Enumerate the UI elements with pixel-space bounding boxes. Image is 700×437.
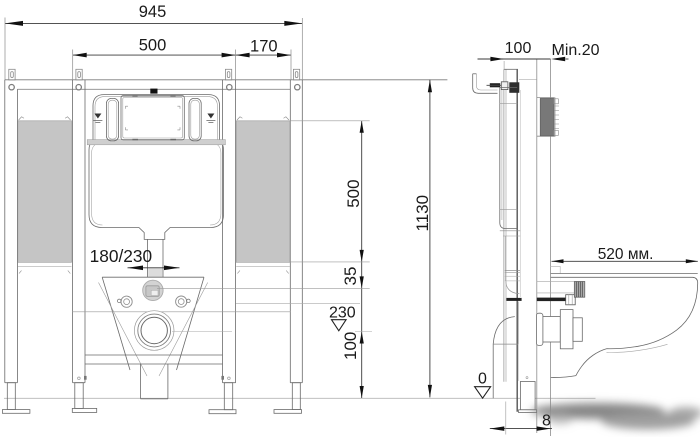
svg-text:0: 0 xyxy=(478,370,487,387)
svg-text:100: 100 xyxy=(341,332,360,360)
svg-text:35: 35 xyxy=(341,267,360,286)
svg-text:170: 170 xyxy=(250,38,278,56)
svg-text:180/230: 180/230 xyxy=(90,246,152,266)
svg-text:Min.20: Min.20 xyxy=(551,42,599,59)
svg-text:520 мм.: 520 мм. xyxy=(598,246,654,263)
svg-text:230: 230 xyxy=(329,305,356,322)
svg-text:8: 8 xyxy=(542,413,551,430)
svg-text:100: 100 xyxy=(505,40,532,57)
svg-text:1130: 1130 xyxy=(413,195,432,232)
svg-text:500: 500 xyxy=(344,179,363,207)
svg-text:945: 945 xyxy=(139,3,167,21)
svg-text:500: 500 xyxy=(139,37,167,55)
